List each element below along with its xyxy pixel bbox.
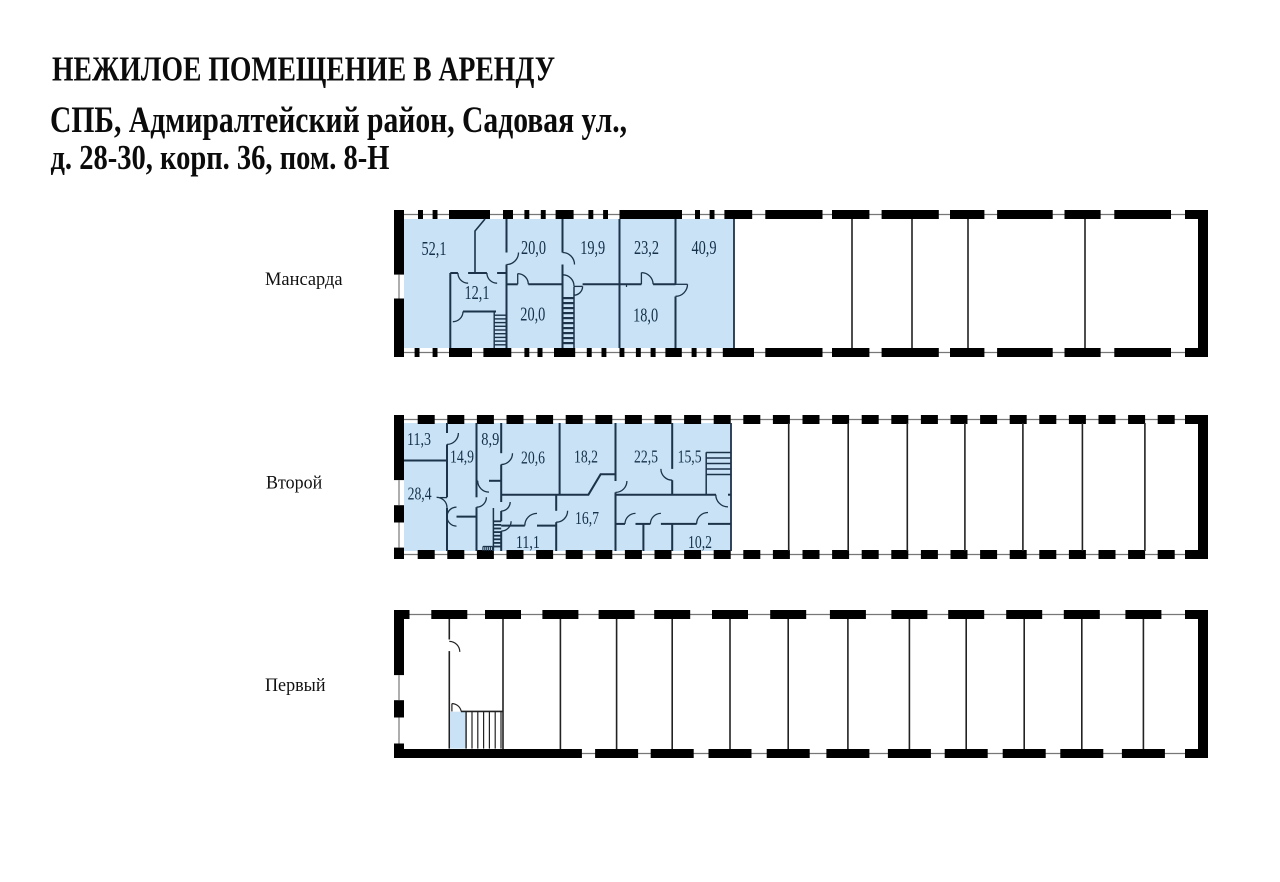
svg-text:18,2: 18,2 (574, 447, 598, 467)
svg-text:23,2: 23,2 (634, 237, 659, 259)
svg-text:СПБ, Адмиралтейский район, Сад: СПБ, Адмиралтейский район, Садовая ул., (50, 99, 627, 140)
svg-text:20,0: 20,0 (521, 237, 546, 259)
svg-text:16,7: 16,7 (575, 508, 599, 528)
svg-text:20,6: 20,6 (521, 448, 545, 468)
svg-text:22,5: 22,5 (634, 447, 658, 467)
svg-text:Первый: Первый (265, 675, 326, 696)
svg-text:19,9: 19,9 (580, 237, 605, 259)
svg-text:11,3: 11,3 (407, 429, 431, 449)
svg-text:11,1: 11,1 (516, 532, 540, 552)
svg-text:8,9: 8,9 (481, 429, 499, 449)
svg-text:52,1: 52,1 (422, 238, 447, 260)
svg-text:Мансарда: Мансарда (265, 269, 343, 290)
svg-text:20,0: 20,0 (520, 304, 545, 326)
svg-text:15,5: 15,5 (678, 447, 702, 467)
svg-text:28,4: 28,4 (408, 483, 432, 503)
svg-text:Второй: Второй (266, 473, 322, 494)
svg-text:10,2: 10,2 (688, 532, 712, 552)
svg-text:40,9: 40,9 (692, 237, 717, 259)
svg-text:18,0: 18,0 (633, 304, 658, 326)
svg-text:д. 28-30, корп. 36, пом. 8-Н: д. 28-30, корп. 36, пом. 8-Н (51, 138, 390, 177)
svg-text:НЕЖИЛОЕ ПОМЕЩЕНИЕ В АРЕНДУ: НЕЖИЛОЕ ПОМЕЩЕНИЕ В АРЕНДУ (52, 51, 555, 89)
svg-text:12,1: 12,1 (465, 282, 490, 304)
svg-text:14,9: 14,9 (450, 447, 474, 467)
